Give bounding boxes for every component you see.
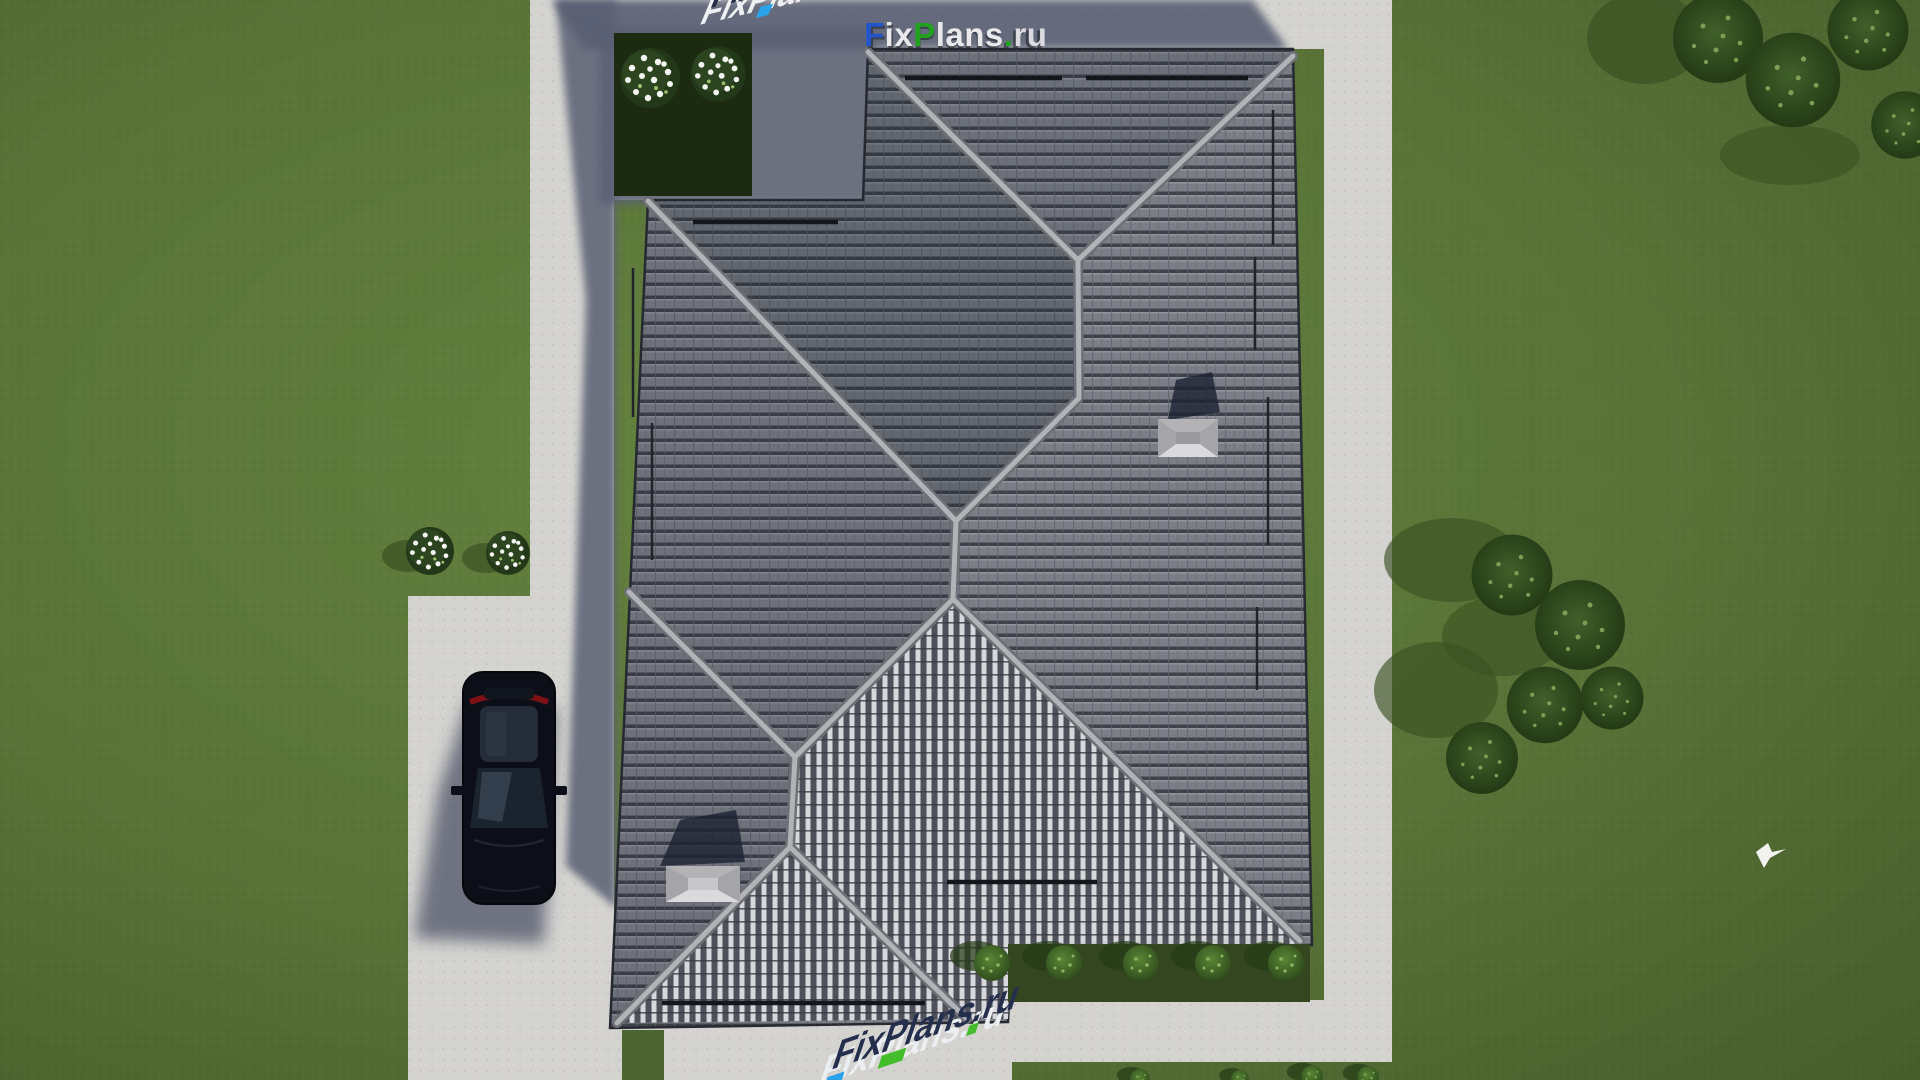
east-path bbox=[1324, 26, 1392, 1062]
chimney-cap bbox=[666, 866, 740, 902]
south-path bbox=[966, 1000, 1392, 1062]
north-east-path-corner bbox=[1324, 0, 1392, 26]
car bbox=[451, 672, 567, 904]
chimney-cap bbox=[1158, 419, 1218, 457]
watermark-top: FixPlans.ru FixPlans.ru bbox=[864, 16, 1047, 55]
aerial-house-render: FixPlans.ru FixPlans.ru FixPlans.ru FixP… bbox=[0, 0, 1920, 1080]
terrace-grass-notch bbox=[622, 1030, 664, 1080]
watermark-top-text: FixPlans.ru bbox=[864, 16, 1047, 53]
flower-bush bbox=[486, 531, 530, 575]
tree-shadow bbox=[1720, 125, 1860, 185]
flower-bush bbox=[620, 48, 680, 108]
aerial-render-stage: FixPlans.ru FixPlans.ru FixPlans.ru FixP… bbox=[0, 0, 1920, 1080]
flower-bush bbox=[406, 527, 454, 575]
flower-bush bbox=[690, 46, 745, 101]
car-mirror-right bbox=[554, 786, 567, 795]
car-rear-window bbox=[484, 688, 534, 699]
car-mirror-left bbox=[451, 786, 464, 795]
